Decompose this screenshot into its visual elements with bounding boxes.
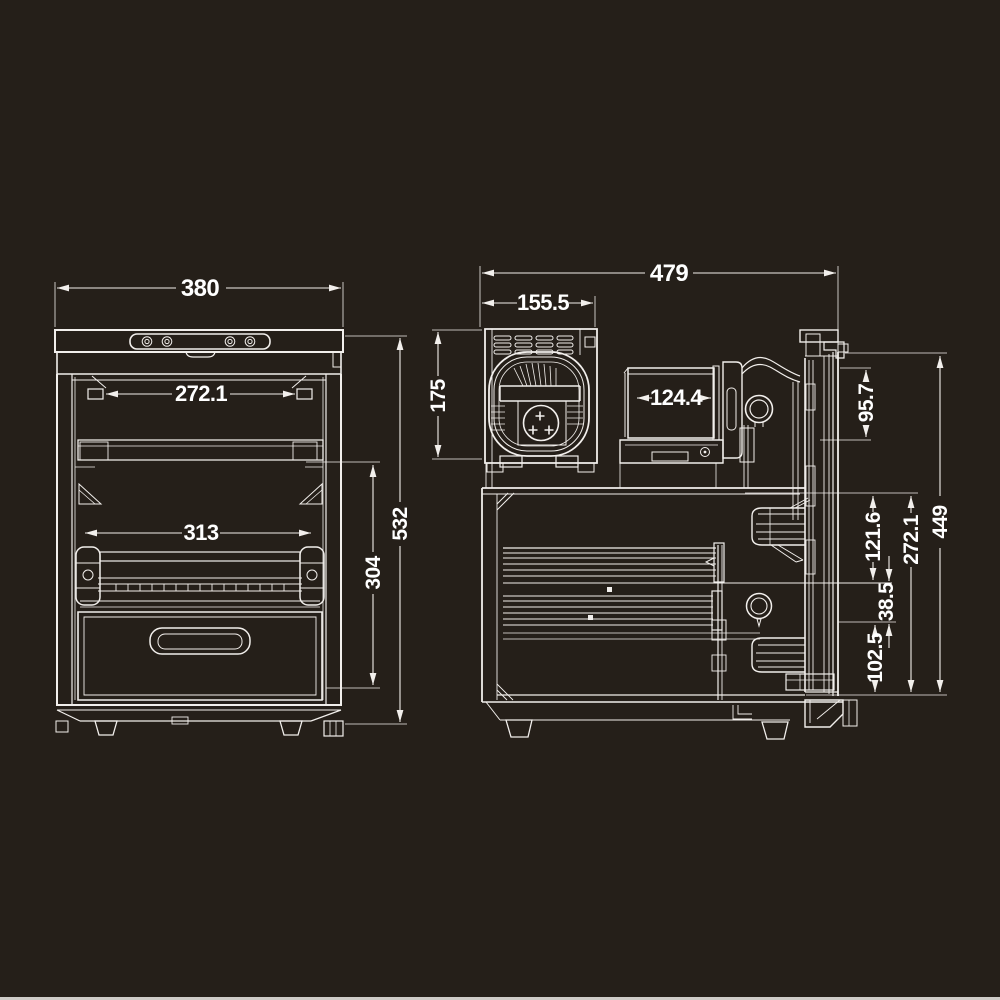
front-base	[56, 710, 343, 736]
dim-shelf-gap: 38.5	[875, 582, 898, 621]
dim-front-inner-width-upper: 272.1	[175, 381, 227, 406]
dimension-drawing-canvas: 380 272.1 313 304 532	[0, 0, 1000, 1000]
front-view: 380 272.1 313 304 532	[55, 275, 412, 736]
front-lid	[55, 330, 343, 374]
dim-top-section-height: 95.7	[855, 384, 878, 422]
dim-machine-compartment-depth: 155.5	[517, 290, 569, 315]
side-shelf-lower	[503, 591, 722, 630]
dim-bottom-section-height: 102.5	[864, 632, 887, 682]
hinge-arm	[723, 358, 800, 520]
control-buttons	[142, 337, 255, 347]
dim-machine-compartment-height: 175	[427, 378, 450, 412]
door-top-hinge	[800, 330, 848, 358]
compressor	[489, 352, 589, 467]
front-drawer	[78, 612, 322, 700]
door-bottom-hinge	[786, 674, 857, 727]
dim-evaporator-box-depth: 124.4	[650, 385, 703, 410]
capillary-pipes	[793, 382, 798, 520]
dimension-drawing: 380 272.1 313 304 532	[0, 0, 1000, 1000]
side-shelf-upper	[503, 543, 724, 582]
dim-front-inner-width-lower: 313	[184, 520, 219, 545]
front-wire-shelf	[76, 547, 324, 607]
door-shelf-bracket-lower	[752, 638, 805, 672]
dim-front-overall-height: 532	[389, 507, 412, 540]
door-shelf-bracket-upper	[752, 498, 810, 562]
dim-body-side-height: 449	[929, 505, 952, 538]
front-dimensions: 380 272.1 313 304 532	[55, 275, 412, 724]
dim-side-overall-depth: 479	[650, 260, 688, 287]
drawer-handle	[150, 628, 250, 654]
dim-side-interior-height: 272.1	[900, 514, 923, 564]
dim-upper-shelf-span: 121.6	[862, 512, 885, 562]
front-foot-right	[280, 721, 302, 735]
side-foot-left	[506, 720, 532, 737]
side-foot-right	[762, 722, 788, 739]
compressor-compartment	[485, 329, 597, 488]
dim-front-interior-height: 304	[362, 555, 385, 589]
side-dimensions: 479 155.5 175 124.4 95.7 121.6 38.5	[427, 260, 952, 695]
side-view: 479 155.5 175 124.4 95.7 121.6 38.5	[427, 260, 952, 739]
control-panel	[130, 334, 270, 349]
front-foot-left	[95, 721, 117, 735]
dim-front-overall-width: 380	[181, 275, 219, 302]
hinge-ring-bottom	[747, 594, 772, 619]
side-body	[482, 488, 892, 739]
front-upper-shelf	[75, 440, 323, 504]
